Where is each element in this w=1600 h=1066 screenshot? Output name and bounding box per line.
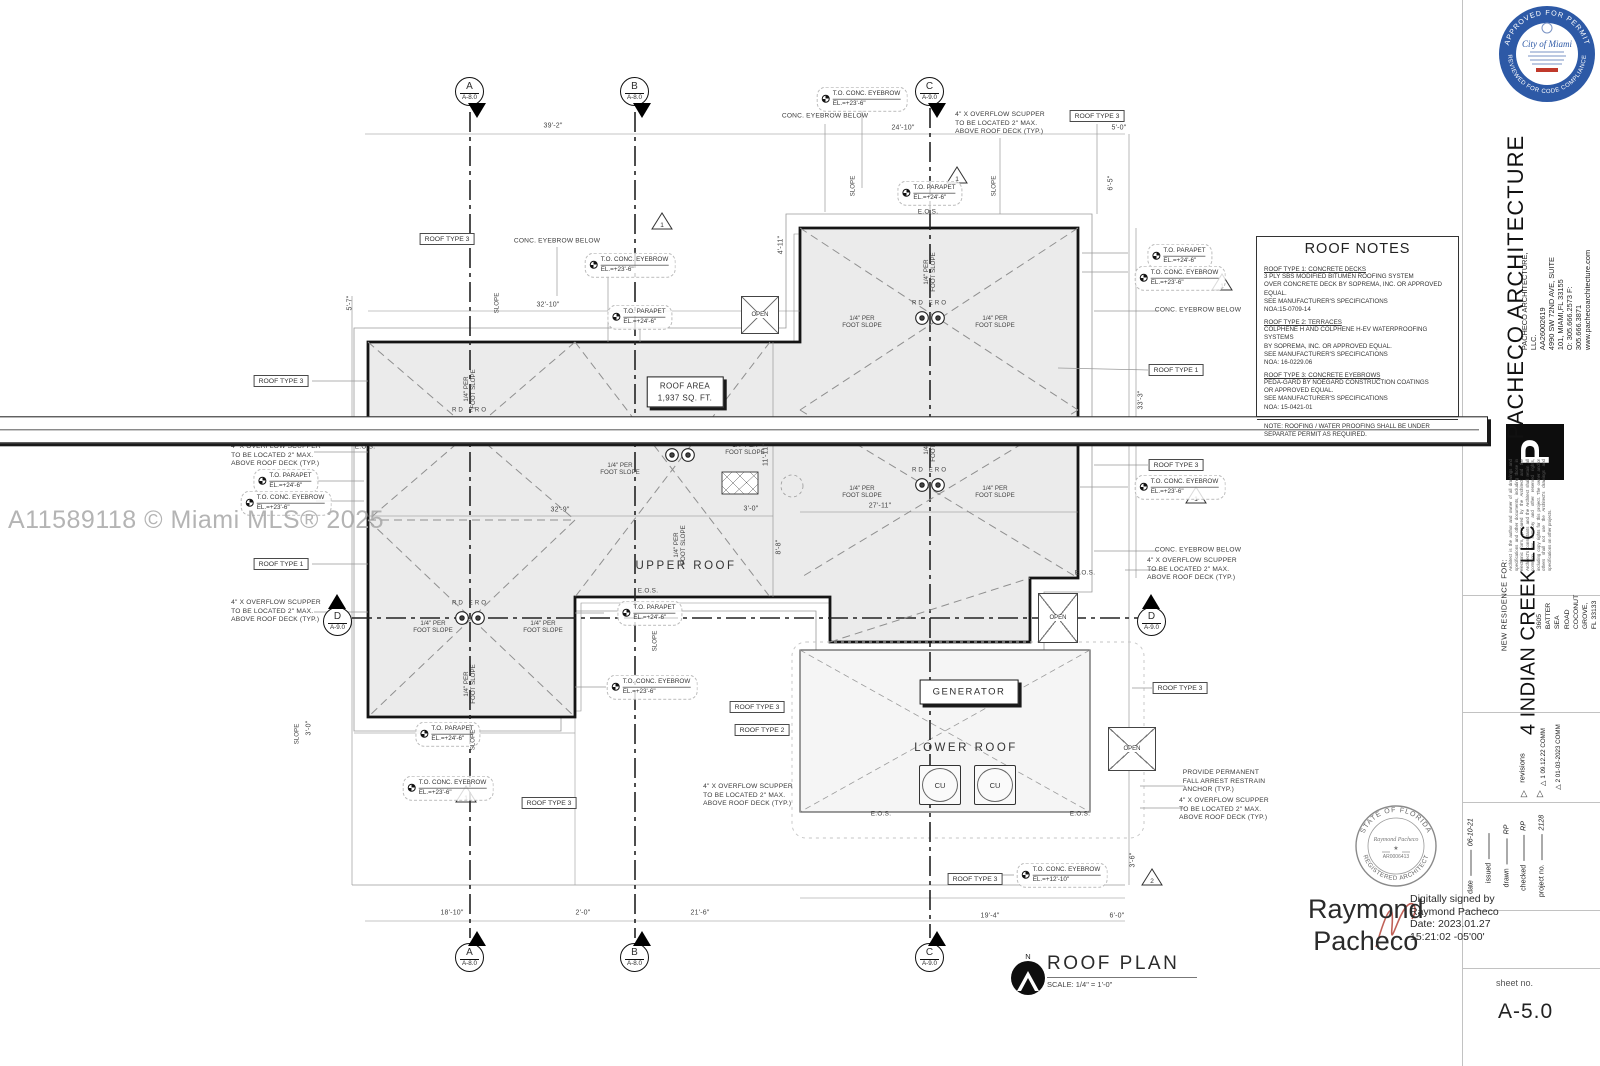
dimension: 27'-11" — [869, 503, 892, 510]
client-name: 4 INDIAN CREEK LLC — [1518, 525, 1541, 735]
elevation-target-icon — [611, 683, 619, 691]
roof-note-3-body: PEDA-GARD BY NOEGARD CONSTRUCTION COATIN… — [1264, 379, 1451, 412]
roof-note-2-title: ROOF TYPE 2: TERRACES — [1264, 319, 1451, 326]
dimension: 5'-0" — [1112, 125, 1127, 132]
overflow-scupper-note: 4" X OVERFLOW SCUPPER TO BE LOCATED 2" M… — [231, 599, 321, 625]
overflow-scupper-note: 4" X OVERFLOW SCUPPER TO BE LOCATED 2" M… — [703, 783, 793, 809]
elevation-target-icon — [612, 313, 620, 321]
digital-signature-details: Digitally signed by Raymond Pacheco Date… — [1410, 893, 1499, 943]
roof-note-1-body: 3 PLY SBS MODIFIED BITUMEN ROOFING SYSTE… — [1264, 273, 1451, 315]
overflow-scupper-note: 4" X OVERFLOW SCUPPER TO BE LOCATED 2" M… — [1179, 797, 1269, 823]
to-conc-eyebrow-label: T.O. CONC. EYEBROWEL.=+23'-6" — [403, 776, 494, 801]
roof-note-1-title: ROOF TYPE 1: CONCRETE DECKS — [1264, 266, 1451, 273]
roof-notes-footnote: NOTE: ROOFING / WATER PROOFING SHALL BE … — [1257, 419, 1458, 443]
open-shaft: OPEN — [741, 296, 779, 334]
to-parapet-label: T.O. PARAPETEL.=+24'-6" — [897, 181, 962, 206]
dimension: 11'-11" — [763, 444, 770, 466]
svg-text:1: 1 — [660, 222, 664, 229]
dimension: 4'-11" — [778, 236, 785, 255]
svg-text:STATE OF FLORIDA: STATE OF FLORIDA — [1360, 807, 1433, 835]
elevation-target-icon — [622, 609, 630, 617]
grid-marker-c-bottom: CA-9.0 — [915, 943, 945, 973]
slope-label: 1/4" PER FOOT SLOPE — [413, 620, 452, 634]
dimension: 3'-0" — [306, 721, 313, 736]
dimension: 8'-8" — [776, 540, 783, 555]
mls-watermark: A11589118 © Miami MLS® 2025 — [8, 506, 384, 535]
revision-entry: 2 01-03-2023 COMM — [1554, 724, 1562, 789]
to-parapet-label: T.O. PARAPETEL.=+24'-6" — [617, 601, 682, 626]
grid-marker-a-top: AA-8.0 — [455, 77, 485, 107]
elevation-target-icon — [1152, 252, 1160, 260]
slope-label: 1/4" PER FOOT SLOPE — [463, 369, 477, 408]
section-arrow-icon — [1142, 594, 1160, 609]
grid-marker-b-bottom: BA-8.0 — [620, 943, 650, 973]
firm-contact-info: PACHECO ARCHITECTURE, LLC. AA26002619 49… — [1520, 250, 1592, 350]
slope-label: 1/4" PER FOOT SLOPE — [975, 315, 1014, 329]
elevation-target-icon — [902, 189, 910, 197]
roof-notes-title: ROOF NOTES — [1257, 237, 1458, 260]
to-conc-eyebrow-label: T.O. CONC. EYEBROWEL.=+23'-6" — [607, 675, 698, 700]
dimension: 6'-0" — [1110, 913, 1125, 920]
dimension: 18'-10" — [440, 910, 463, 917]
revision-triangle-icon — [1521, 783, 1528, 801]
to-parapet-label: T.O. PARAPETEL.=+24'-6" — [607, 305, 672, 330]
north-label: N — [1010, 952, 1046, 961]
fall-arrest-note: PROVIDE PERMANENT FALL ARREST RESTRAIN A… — [1183, 769, 1265, 795]
condensing-unit: CU — [919, 765, 961, 805]
roof-type-3-label: ROOF TYPE 3 — [1149, 459, 1204, 471]
slope-word: SLOPE — [470, 730, 477, 751]
section-arrow-icon — [468, 931, 486, 946]
section-arrow-icon — [633, 103, 651, 118]
roof-type-3-label: ROOF TYPE 3 — [420, 233, 475, 245]
slope-word: SLOPE — [494, 293, 501, 314]
roof-type-3-label: ROOF TYPE 3 — [522, 797, 577, 809]
slope-label: 1/4" PER FOOT SLOPE — [673, 525, 687, 564]
slope-word: SLOPE — [991, 176, 998, 197]
rd-ero-label: RD ERO — [912, 467, 948, 474]
svg-text:AR0006413: AR0006413 — [1383, 854, 1410, 860]
dimension: 39'-2" — [543, 123, 562, 130]
roof-area-box: ROOF AREA 1,937 SQ. FT. — [647, 376, 724, 407]
slope-label: 1/4" PER FOOT SLOPE — [842, 315, 881, 329]
field-checked: checkedRP — [1521, 821, 1528, 891]
to-conc-eyebrow-label: T.O. CONC. EYEBROWEL.=+23'-6" — [1135, 475, 1226, 500]
field-date: date06-10-21 — [1468, 818, 1475, 894]
roof-type-1-label: ROOF TYPE 1 — [254, 558, 309, 570]
elevation-target-icon — [821, 95, 829, 103]
slope-word: SLOPE — [294, 724, 301, 745]
dimension: 5'-7" — [347, 296, 354, 311]
roof-type-3-label: ROOF TYPE 3 — [948, 873, 1003, 885]
dimension: 3'-0" — [744, 506, 759, 513]
eos-label: E.O.S. — [1070, 811, 1091, 818]
roof-type-3-label: ROOF TYPE 3 — [254, 375, 309, 387]
upper-roof-label: UPPER ROOF — [635, 560, 736, 572]
titleblock-divider — [1462, 968, 1600, 969]
roof-type-3-label: ROOF TYPE 3 — [1070, 110, 1125, 122]
dimension: 33'-3" — [1138, 390, 1145, 409]
revision-triangle-icon — [1537, 783, 1544, 801]
conc-eyebrow-below-label: CONC. EYEBROW BELOW — [1155, 547, 1241, 556]
section-arrow-icon — [928, 103, 946, 118]
slope-label: 1/4" PER FOOT SLOPE — [463, 664, 477, 703]
elevation-target-icon — [1139, 274, 1147, 282]
elevation-target-icon — [407, 784, 415, 792]
slope-label: 1/4" PER FOOT SLOPE — [523, 620, 562, 634]
slope-label: 1/4" PER FOOT SLOPE — [725, 442, 764, 456]
elevation-target-icon — [258, 477, 266, 485]
eos-label: E.O.S. — [1075, 570, 1096, 577]
dimension: 21'-6" — [690, 910, 709, 917]
titleblock-divider — [1462, 802, 1600, 803]
sheet-no-label: sheet no. — [1496, 978, 1533, 988]
section-arrow-icon — [328, 594, 346, 609]
dimension: 24'-10" — [891, 125, 914, 132]
slope-label: 1/4" PER FOOT SLOPE — [600, 462, 639, 476]
to-conc-eyebrow-label: T.O. CONC. EYEBROWEL.=+23'-6" — [1135, 266, 1226, 291]
dimension: 19'-4" — [980, 913, 999, 920]
roof-note-3-title: ROOF TYPE 3: CONCRETE EYEBROWS — [1264, 372, 1451, 379]
rd-ero-label: RD ERO — [452, 407, 488, 414]
section-arrow-icon — [633, 931, 651, 946]
revision-entry: 1 09.12.22 COMM — [1539, 728, 1547, 786]
to-parapet-label: T.O. PARAPETEL.=+24'-6" — [1147, 244, 1212, 269]
title-underline — [1047, 977, 1197, 978]
conc-eyebrow-below-label: CONC. EYEBROW BELOW — [1155, 307, 1241, 316]
condensing-unit: CU — [974, 765, 1016, 805]
open-shaft: OPEN — [1108, 727, 1156, 771]
field-project-no: project no.2128 — [1539, 815, 1546, 897]
elevation-target-icon — [589, 261, 597, 269]
grid-marker-d-right: DA-9.0 — [1137, 607, 1167, 637]
section-arrow-icon — [928, 931, 946, 946]
svg-text:2: 2 — [1150, 878, 1154, 885]
overflow-scupper-note: 4" X OVERFLOW SCUPPER TO BE LOCATED 2" M… — [1147, 557, 1237, 583]
north-arrow-icon — [1011, 961, 1045, 995]
slope-label: 1/4" PER FOOT SLOPE — [923, 252, 937, 291]
project-for-label: NEW RESIDENCE FOR: — [1500, 559, 1509, 651]
dimension: 6'-5" — [1108, 176, 1115, 191]
dimension: 32'-10" — [536, 302, 559, 309]
florida-architect-seal: STATE OF FLORIDA REGISTERED ARCHITECT Ra… — [1350, 800, 1442, 892]
slope-label: 1/4" PER FOOT SLOPE — [842, 485, 881, 499]
rd-ero-label: RD ERO — [452, 600, 488, 607]
slope-label: 1/4" PER FOOT SLOPE — [975, 485, 1014, 499]
conc-eyebrow-below-label: CONC. EYEBROW BELOW — [782, 113, 868, 122]
revisions-label: revisions — [1518, 753, 1527, 783]
roof-type-2-label: ROOF TYPE 2 — [735, 724, 790, 736]
dimension: 32'-9" — [550, 507, 569, 514]
roof-plan-sheet: { "watermark": { "text": "A11589118 © Mi… — [0, 0, 1600, 1066]
dimension: 2'-0" — [576, 910, 591, 917]
svg-text:Raymond Pacheco: Raymond Pacheco — [1373, 837, 1419, 843]
grid-marker-c-top: CA-9.0 — [915, 77, 945, 107]
roof-notes-panel: ROOF NOTES ROOF TYPE 1: CONCRETE DECKS 3… — [1256, 236, 1459, 417]
drawing-scale: SCALE: 1/4" = 1'-0" — [1047, 980, 1197, 989]
to-parapet-label: T.O. PARAPETEL.=+24'-6" — [253, 469, 318, 494]
overflow-scupper-note: 4" X OVERFLOW SCUPPER TO BE LOCATED 2" M… — [955, 111, 1045, 137]
slope-word: SLOPE — [850, 176, 857, 197]
grid-marker-d-left: DA-9.0 — [323, 607, 353, 637]
field-issued: issued — [1486, 829, 1493, 883]
to-conc-eyebrow-label: T.O. CONC. EYEBROWEL.=+23'-6" — [585, 253, 676, 278]
lower-roof-label: LOWER ROOF — [914, 742, 1018, 754]
section-arrow-icon — [468, 103, 486, 118]
eos-label: E.O.S. — [638, 588, 659, 595]
drawing-title-block: ROOF PLAN SCALE: 1/4" = 1'-0" — [1047, 953, 1197, 989]
svg-text:★: ★ — [1393, 845, 1398, 852]
elevation-target-icon — [420, 730, 428, 738]
svg-text:City of Miami: City of Miami — [1522, 39, 1572, 49]
eos-label: E.O.S. — [871, 811, 892, 818]
north-arrow: N — [1010, 952, 1046, 995]
grid-marker-a-bottom: AA-8.0 — [455, 943, 485, 973]
sheet-number: A-5.0 — [1498, 1000, 1553, 1024]
open-shaft: OPEN — [1038, 593, 1078, 643]
to-conc-eyebrow-label: T.O. CONC. EYEBROWEL.=+12'-10" — [1017, 863, 1108, 888]
drawing-title: ROOF PLAN — [1047, 953, 1197, 975]
signature-name: Raymond Pacheco — [1308, 893, 1424, 958]
grid-marker-b-top: BA-8.0 — [620, 77, 650, 107]
project-address: 3605 BATTER SEA ROAD COCONUT GROVE, FL 3… — [1535, 595, 1599, 629]
generator-label: GENERATOR — [920, 680, 1019, 705]
eos-label: E.O.S. — [355, 444, 376, 451]
elevation-target-icon — [1021, 871, 1029, 879]
conc-eyebrow-below-label: CONC. EYEBROW BELOW — [514, 238, 600, 247]
elevation-target-icon — [1139, 483, 1147, 491]
overflow-scupper-note: 4" X OVERFLOW SCUPPER TO BE LOCATED 2" M… — [231, 443, 321, 469]
slope-word: SLOPE — [652, 631, 659, 652]
eos-label: E.O.S. — [918, 209, 939, 216]
field-drawn: drawnRP — [1504, 825, 1511, 888]
rd-ero-label: RD ERO — [912, 300, 948, 307]
roof-note-2-body: COLPHENE H AND COLPHENE H-EV WATERPROOFI… — [1264, 326, 1451, 368]
dimension: 3'-6" — [1130, 853, 1137, 868]
roof-type-3-label: ROOF TYPE 3 — [730, 701, 785, 713]
roof-type-3-label: ROOF TYPE 3 — [1153, 682, 1208, 694]
city-of-miami-approval-seal: APPROVED FOR PERMIT REVIEWED FOR CODE CO… — [1492, 2, 1600, 106]
roof-type-1-label: ROOF TYPE 1 — [1149, 364, 1204, 376]
to-conc-eyebrow-label: T.O. CONC. EYEBROWEL.=+23'-6" — [817, 87, 908, 112]
